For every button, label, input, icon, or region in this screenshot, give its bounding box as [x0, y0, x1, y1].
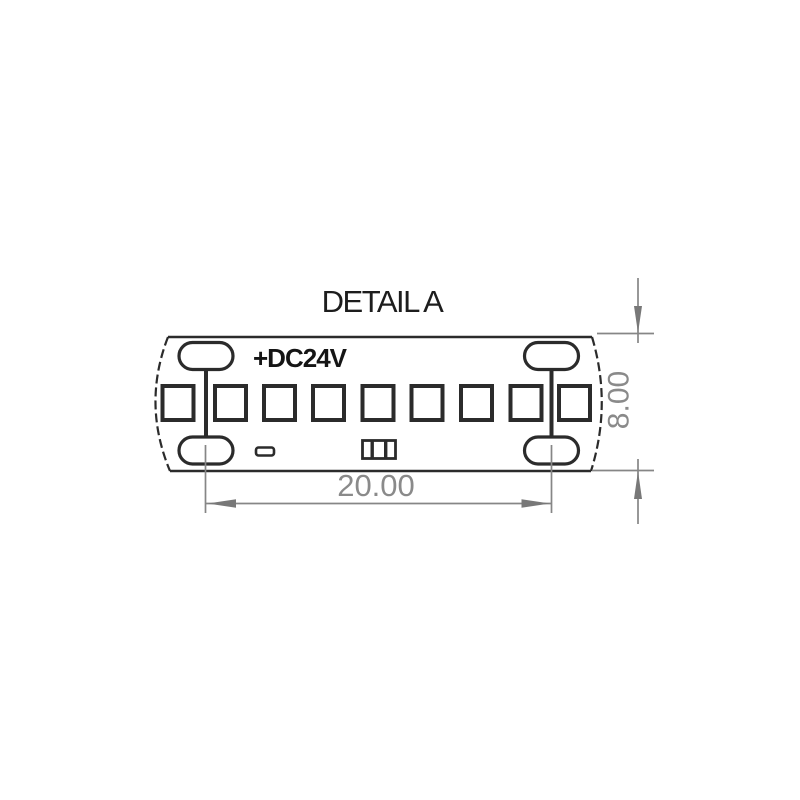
detail-a-drawing: 20.00 8.00 DETAIL A +DC24V [0, 0, 800, 800]
polarity-label: +DC24V [253, 343, 348, 373]
jumper-pad [256, 448, 274, 456]
led-pad [461, 386, 492, 420]
led-pad [363, 386, 394, 420]
height-dimension-value: 8.00 [603, 371, 636, 429]
led-pad-row [163, 386, 591, 420]
height-dimension: 8.00 [592, 278, 654, 524]
led-pad [264, 386, 295, 420]
height-arrow-down-icon [634, 306, 642, 333]
led-pad [559, 386, 590, 420]
led-pad [511, 386, 542, 420]
led-pad [215, 386, 246, 420]
resistor-right-terminal [384, 442, 387, 458]
led-pad [313, 386, 344, 420]
resistor-left-terminal [371, 442, 374, 458]
led-pad [412, 386, 443, 420]
strip-right-break-edge [591, 337, 602, 471]
height-arrow-up-icon [634, 471, 642, 499]
width-arrow-right-icon [522, 499, 551, 507]
led-pad [163, 386, 194, 420]
width-arrow-left-icon [208, 499, 237, 507]
page-title: DETAIL A [322, 284, 444, 319]
solder-pad-top-left [179, 343, 233, 370]
solder-pad-top-right [525, 343, 579, 370]
resistor-footprint [363, 441, 396, 459]
drawing-canvas: 20.00 8.00 DETAIL A +DC24V [0, 0, 800, 800]
resistor-body [363, 441, 396, 459]
width-dimension-value: 20.00 [337, 468, 415, 503]
